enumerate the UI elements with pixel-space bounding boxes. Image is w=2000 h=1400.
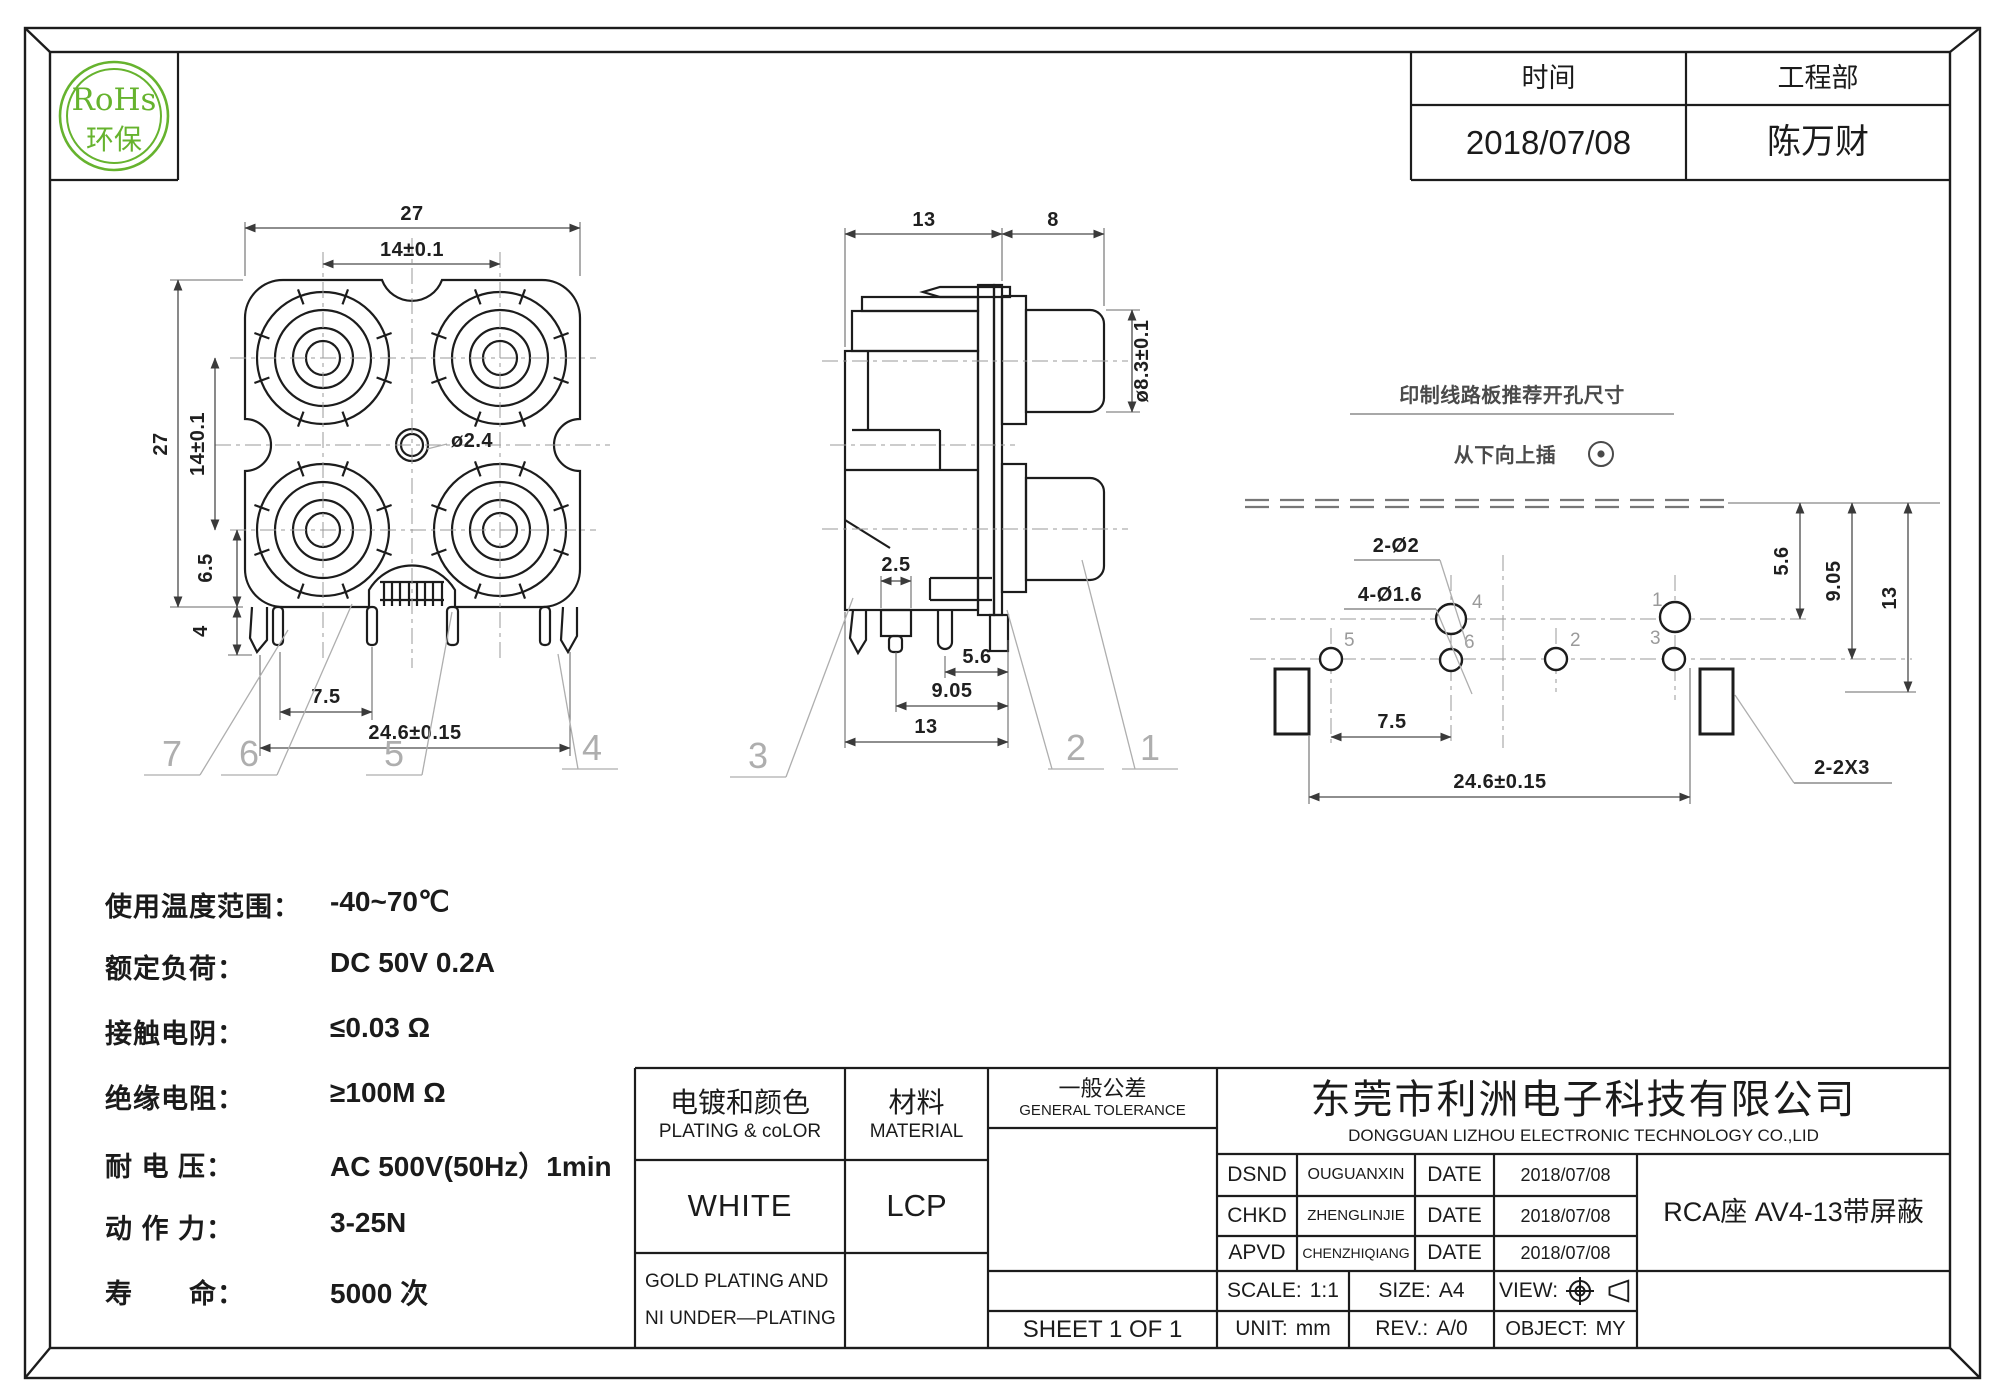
approval-date-label: DATE [1415,1196,1494,1236]
side-flange-plate [978,285,994,615]
svg-text:2-2X3: 2-2X3 [1814,757,1870,779]
tolerance-header: 一般公差 GENERAL TOLERANCE [988,1068,1217,1128]
unit-cell: UNIT: mm [1217,1311,1349,1348]
pcb-hole-2mm [1660,602,1690,632]
approval-date: 2018/07/08 [1494,1154,1637,1196]
view-cell: VIEW: [1494,1271,1637,1311]
svg-text:2: 2 [1570,630,1581,651]
svg-text:ø8.3±0.1: ø8.3±0.1 [1131,320,1153,403]
first-angle-projection-icon [1564,1275,1596,1307]
header-dept-label: 工程部 [1686,52,1950,105]
header-time-label: 时间 [1411,52,1686,105]
pcb-hole-1p6mm [1440,649,1462,671]
svg-text:7.5: 7.5 [1377,711,1406,733]
pcb-view: 印制线路板推荐开孔尺寸 从下向上插 4 1 5 6 2 [1245,383,1940,804]
svg-text:13: 13 [912,209,935,231]
svg-text:4: 4 [190,625,212,637]
svg-text:7: 7 [162,733,182,774]
plating-note: GOLD PLATING AND NI UNDER—PLATING [635,1253,845,1348]
svg-text:9.05: 9.05 [932,680,973,702]
pcb-slot-left [1275,669,1309,734]
svg-text:从下向上插: 从下向上插 [1454,443,1557,467]
svg-text:2: 2 [1066,727,1086,768]
pcb-hole-1p6mm [1320,648,1342,670]
svg-text:3: 3 [748,735,768,776]
approval-name: CHENZHIQIANG [1297,1236,1415,1271]
material-header: 材料 MATERIAL [845,1068,988,1160]
rohs-logo-text: RoHs [50,82,178,118]
svg-text:14±0.1: 14±0.1 [380,239,444,261]
pcb-hole-1p6mm [1663,648,1685,670]
side-view-callouts: 3 2 1 [730,560,1178,777]
svg-text:4: 4 [582,727,602,768]
svg-text:4-Ø1.6: 4-Ø1.6 [1358,584,1422,606]
svg-text:24.6±0.15: 24.6±0.15 [368,722,461,744]
company-name: 东莞市利洲电子科技有限公司 DONGGUAN LIZHOU ELECTRONIC… [1217,1068,1950,1154]
size-cell: SIZE: A4 [1349,1271,1494,1311]
plating-value: WHITE [635,1160,845,1253]
scale-cell: SCALE: 1:1 [1217,1271,1349,1311]
engineering-drawing-page: 27 14±0.1 27 14±0.1 6.5 4 ø2.4 7.5 24.6±… [0,0,2000,1400]
approval-date: 2018/07/08 [1494,1236,1637,1271]
svg-text:13: 13 [1879,586,1901,609]
insert-direction-icon [1589,442,1613,466]
approval-role: DSND [1217,1154,1297,1196]
side-view-dimensions: 13 8 ø8.3±0.1 2.5 5.6 9.05 13 [845,209,1153,748]
header-time-value: 2018/07/08 [1411,105,1686,180]
pcb-slot-right [1700,669,1733,734]
approval-date: 2018/07/08 [1494,1196,1637,1236]
approval-name: OUGUANXIN [1297,1154,1415,1196]
sheet-label: SHEET 1 OF 1 [988,1311,1217,1348]
svg-text:2-Ø2: 2-Ø2 [1373,535,1419,557]
svg-text:24.6±0.15: 24.6±0.15 [1453,771,1546,793]
svg-text:4: 4 [1472,592,1483,613]
side-top-lug [923,287,1010,297]
rohs-logo-subtext: 环保 [50,122,178,156]
header-dept-value: 陈万财 [1686,105,1950,180]
svg-text:1: 1 [1140,727,1160,768]
approval-name: ZHENGLINJIE [1297,1196,1415,1236]
svg-text:5.6: 5.6 [1771,546,1793,575]
svg-text:3: 3 [1650,628,1661,649]
svg-text:6.5: 6.5 [195,553,217,582]
material-value: LCP [845,1160,988,1253]
svg-text:6: 6 [239,733,259,774]
pcb-hole-1p6mm [1545,648,1567,670]
approval-role: CHKD [1217,1196,1297,1236]
front-view-centerlines [215,238,610,668]
svg-text:7.5: 7.5 [311,686,340,708]
rev-cell: REV.: A/0 [1349,1311,1494,1348]
side-body [845,351,978,610]
svg-text:印制线路板推荐开孔尺寸: 印制线路板推荐开孔尺寸 [1399,383,1625,407]
svg-text:27: 27 [150,432,172,455]
svg-text:ø2.4: ø2.4 [451,430,493,452]
object-cell: OBJECT: MY [1494,1311,1637,1348]
svg-text:5: 5 [384,733,404,774]
svg-text:5: 5 [1344,630,1355,651]
approval-role: APVD [1217,1236,1297,1271]
approval-date-label: DATE [1415,1154,1494,1196]
svg-text:2.5: 2.5 [881,554,910,576]
svg-text:8: 8 [1047,209,1059,231]
front-shield-leg-right [561,607,577,652]
plating-header: 电镀和颜色 PLATING & coLOR [635,1068,845,1160]
svg-text:14±0.1: 14±0.1 [187,412,209,476]
part-name: RCA座 AV4-13带屏蔽 [1637,1154,1950,1271]
front-view-callouts: 7 6 5 4 [144,604,618,775]
svg-text:5.6: 5.6 [962,646,991,668]
approval-date-label: DATE [1415,1236,1494,1271]
front-shield-leg-left [250,607,267,652]
projection-cone-icon [1602,1276,1632,1306]
svg-text:27: 27 [400,203,423,225]
svg-text:9.05: 9.05 [1823,561,1845,602]
side-view [845,285,1104,653]
svg-text:13: 13 [914,716,937,738]
svg-text:1: 1 [1652,590,1663,611]
